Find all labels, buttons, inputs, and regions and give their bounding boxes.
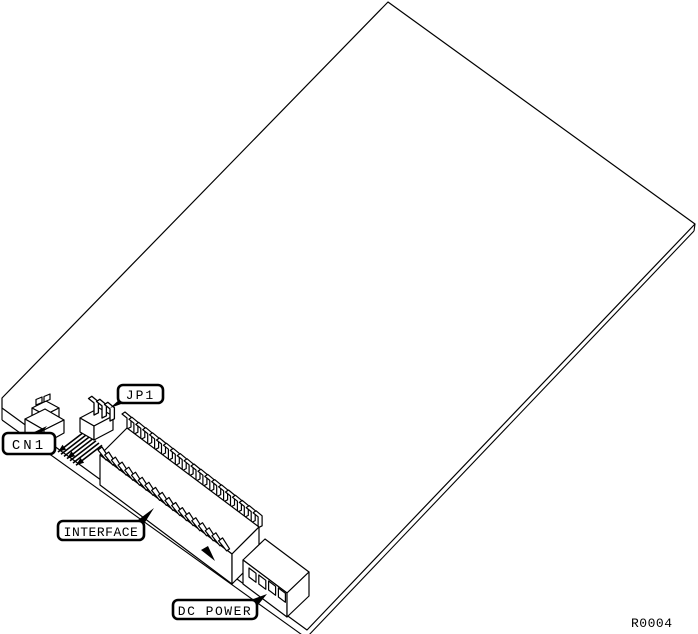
figure-reference: R0004: [631, 616, 673, 631]
board-drawing: CN1 JP1 INTERFACE DC POWER R0004: [0, 0, 698, 634]
dc-power-label: DC POWER: [178, 604, 252, 619]
circuit-board-figure: CN1 JP1 INTERFACE DC POWER R0004: [0, 0, 698, 634]
interface-label: INTERFACE: [64, 525, 139, 540]
jp1-label: JP1: [126, 388, 155, 403]
dc-power-callout: DC POWER: [173, 594, 267, 619]
cn1-label: CN1: [12, 438, 46, 454]
